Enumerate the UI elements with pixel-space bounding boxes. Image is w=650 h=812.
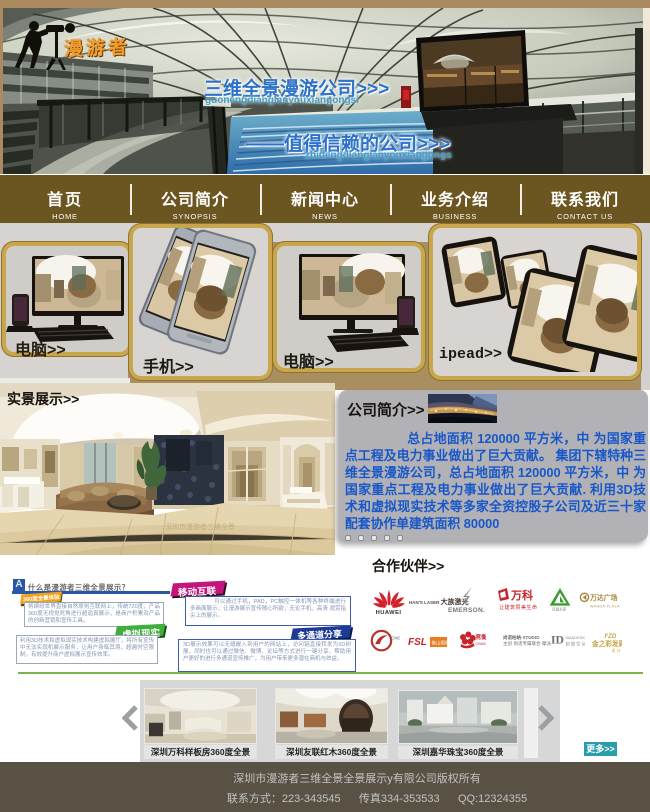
svg-text:设 计: 设 计 <box>611 648 620 653</box>
svg-text:凤凰至家: 凤凰至家 <box>552 606 567 611</box>
svg-text:EMERSON.: EMERSON. <box>448 607 485 614</box>
svg-text:金之彩发彩: 金之彩发彩 <box>592 639 622 648</box>
svg-text:万达广场: 万达广场 <box>589 593 618 602</box>
svg-text:CNOOC: CNOOC <box>391 636 400 641</box>
svg-text:HUAWEI: HUAWEI <box>376 610 402 616</box>
svg-text:佛山照明: 佛山照明 <box>432 640 449 647</box>
svg-text:让建筑赞美生命: 让建筑赞美生命 <box>499 604 538 611</box>
svg-text:创 想 空 间: 创 想 空 间 <box>565 640 585 647</box>
svg-text:FZD: FZD <box>604 633 617 640</box>
svg-text:SIA&DESIGN: SIA&DESIGN <box>565 635 585 640</box>
svg-text:万科: 万科 <box>510 588 533 602</box>
svg-text:WANDA PLAZA: WANDA PLAZA <box>590 604 620 608</box>
svg-text:ID: ID <box>551 634 564 647</box>
svg-text:CHANCE: CHANCE <box>475 642 486 646</box>
svg-text:竞衡: 竞衡 <box>475 633 486 641</box>
svg-text:FSL: FSL <box>408 637 427 648</box>
svg-text:深圳市漫游者三维全景: 深圳市漫游者三维全景 <box>165 522 235 531</box>
